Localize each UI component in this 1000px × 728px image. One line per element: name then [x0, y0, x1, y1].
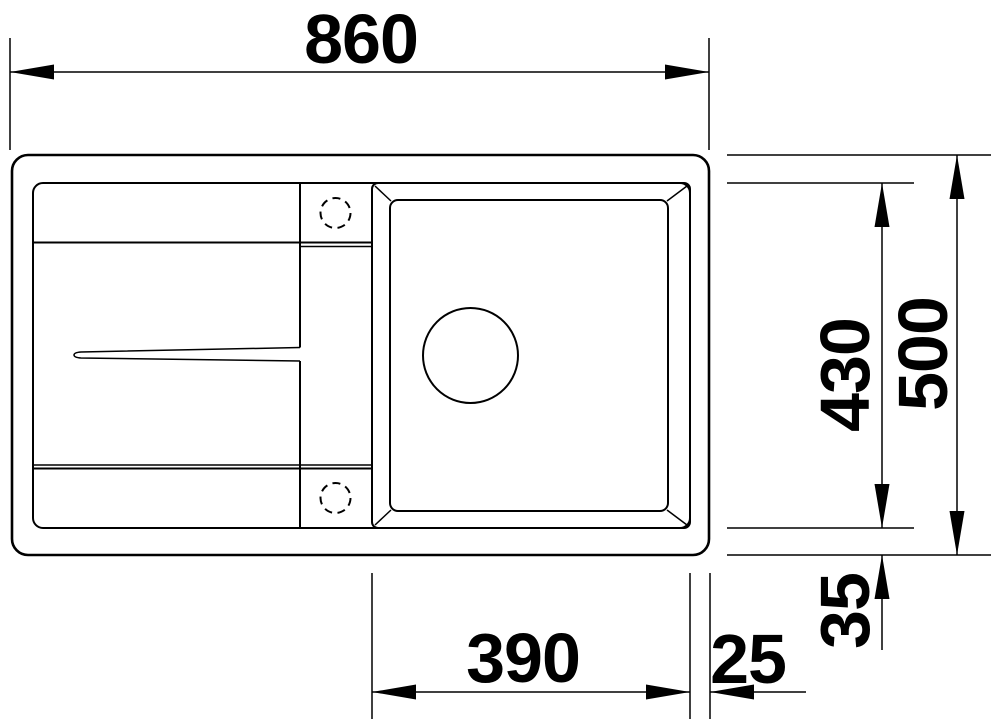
tap-hole-bottom — [321, 483, 351, 513]
drainboard-groove — [74, 348, 300, 362]
arrowhead-top — [875, 183, 890, 227]
arrowhead-top — [950, 155, 965, 199]
dimension-25: 25 — [710, 573, 806, 719]
drain-hole — [423, 308, 518, 403]
dimension-label-500: 500 — [884, 297, 962, 411]
bowl — [372, 183, 690, 528]
bowl-corner-chamfer-tl — [375, 186, 391, 201]
tap-hole-top — [321, 198, 351, 228]
dimension-35: 35 — [806, 555, 890, 650]
dimension-label-25: 25 — [710, 620, 786, 698]
dimension-label-35: 35 — [806, 573, 884, 649]
arrowhead-right — [665, 65, 709, 80]
bowl-corner-chamfer-tr — [667, 186, 687, 201]
sink-outer-outline — [12, 155, 709, 555]
dimension-390: 390 — [372, 573, 690, 719]
arrowhead-right — [646, 685, 690, 700]
sink-inner-rim — [33, 183, 690, 528]
arrowhead-bottom — [875, 484, 890, 528]
sink-body — [12, 155, 709, 555]
sink-technical-drawing: 860 430 500 35 390 25 — [0, 0, 1000, 728]
bowl-corner-chamfer-br — [667, 510, 687, 525]
dimension-label-860: 860 — [304, 0, 418, 78]
dimension-860: 860 — [10, 0, 709, 150]
arrowhead-left — [10, 65, 54, 80]
bowl-inner-edge — [390, 200, 668, 511]
dimension-label-390: 390 — [466, 619, 580, 697]
arrowhead-left — [372, 685, 416, 700]
arrowhead-bottom — [950, 511, 965, 555]
bowl-outer-rim — [372, 183, 690, 528]
bowl-corner-chamfer-bl — [375, 510, 391, 525]
dimension-label-430: 430 — [806, 318, 884, 432]
drawing-canvas: 860 430 500 35 390 25 — [0, 0, 1000, 728]
